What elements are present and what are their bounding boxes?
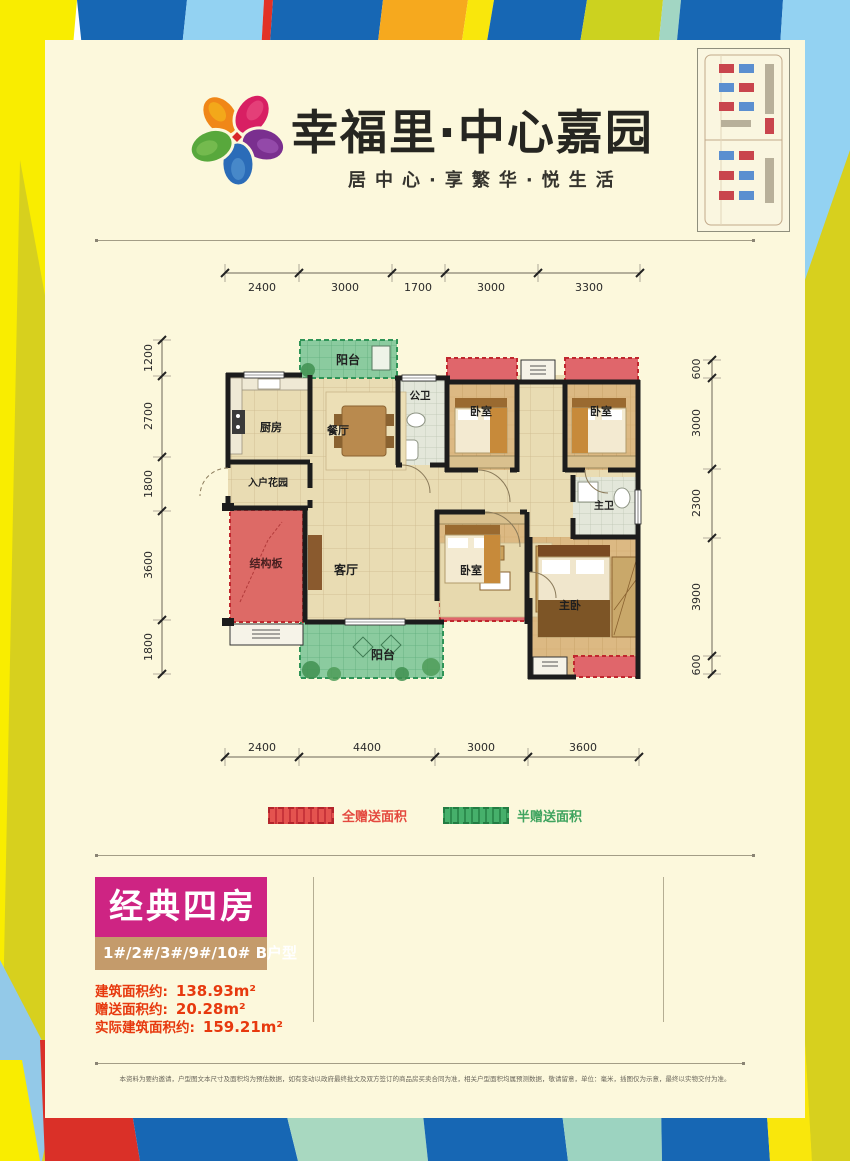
site-plan-map [697,48,790,232]
area-line-gift: 赠送面积约: 20.28m² [95,998,283,1016]
built-area-value: 138.93m² [176,982,256,1000]
dim-right-2: 3000 [690,409,703,437]
gift-area-legend: 全赠送面积 半赠送面积 [45,806,805,825]
dim-bottom-2: 4400 [353,741,381,754]
legend-half-gift: 半赠送面积 [443,806,582,825]
room-label-balcony-bottom: 阳台 [371,647,395,662]
area-line-actual: 实际建筑面积约: 159.21m² [95,1016,283,1034]
room-label-entry-garden: 入户花园 [248,476,288,489]
dim-bottom-4: 3600 [569,741,597,754]
dim-right-3: 2300 [690,489,703,517]
room-label-balcony-top: 阳台 [336,352,360,367]
gift-area-label: 赠送面积约: [95,998,168,1018]
dim-top-1: 2400 [248,281,276,294]
actual-area-label: 实际建筑面积约: [95,1016,195,1036]
dim-left-3: 1800 [142,470,155,498]
legend-full-gift: 全赠送面积 [268,806,407,825]
dim-top-4: 3000 [477,281,505,294]
area-list: 建筑面积约: 138.93m² 赠送面积约: 20.28m² 实际建筑面积约: … [95,980,283,1034]
brand-slogan: 居中心·享繁华·悦生活 [348,166,623,192]
brand-title: 幸福里·中心嘉园 [291,94,654,163]
room-label-bedroom-1: 卧室 [470,404,492,418]
room-label-bedroom-2: 卧室 [590,404,612,418]
half-gift-label: 半赠送面积 [517,806,582,825]
dim-left-5: 1800 [142,633,155,661]
info-divider-1 [313,877,314,1022]
room-label-structural-slab: 结构板 [249,556,284,570]
divider-bottom [95,1063,745,1064]
room-label-dining: 餐厅 [326,423,349,437]
divider-mid [95,855,755,856]
info-divider-2 [663,877,664,1022]
half-gift-swatch-icon [443,807,509,824]
unit-numbers: 1#/2#/3#/9#/10# B户型 [95,937,267,970]
dim-top-5: 3300 [575,281,603,294]
area-line-built: 建筑面积约: 138.93m² [95,980,283,998]
dim-left-2: 2700 [142,402,155,430]
full-gift-swatch-icon [268,807,334,824]
disclaimer-text: 本资料为要约邀请，户型图文本尺寸及面积均为预估数据，如有变动以政府最终批文及双方… [115,1073,735,1083]
room-label-bedroom-3: 卧室 [460,563,482,577]
floor-plan: 阳台 公卫 卧室 卧室 厨房 餐厅 入户花园 结构板 客厅 卧室 主卫 主卧 阳… [140,250,760,780]
dim-right-5: 600 [690,655,703,676]
built-area-label: 建筑面积约: [95,980,168,1000]
dim-top-2: 3000 [331,281,359,294]
room-label-master-bath: 主卫 [594,499,614,512]
logo-flower-icon [185,85,289,189]
dim-left-1: 1200 [142,344,155,372]
actual-area-value: 159.21m² [203,1018,283,1036]
full-gift-label: 全赠送面积 [342,806,407,825]
dim-bottom-3: 3000 [467,741,495,754]
dim-right-1: 600 [690,359,703,380]
dim-top-3: 1700 [404,281,432,294]
poster-card: 幸福里·中心嘉园 居中心·享繁华·悦生活 [45,40,805,1118]
dim-left-4: 3600 [142,551,155,579]
room-label-living: 客厅 [333,562,358,577]
room-label-kitchen: 厨房 [260,420,282,434]
divider-top [95,240,755,241]
room-label-master-bedroom: 主卧 [559,598,581,612]
unit-headline: 经典四房 [95,877,267,937]
dim-right-4: 3900 [690,583,703,611]
room-label-public-bath: 公卫 [410,390,431,402]
dim-bottom-1: 2400 [248,741,276,754]
